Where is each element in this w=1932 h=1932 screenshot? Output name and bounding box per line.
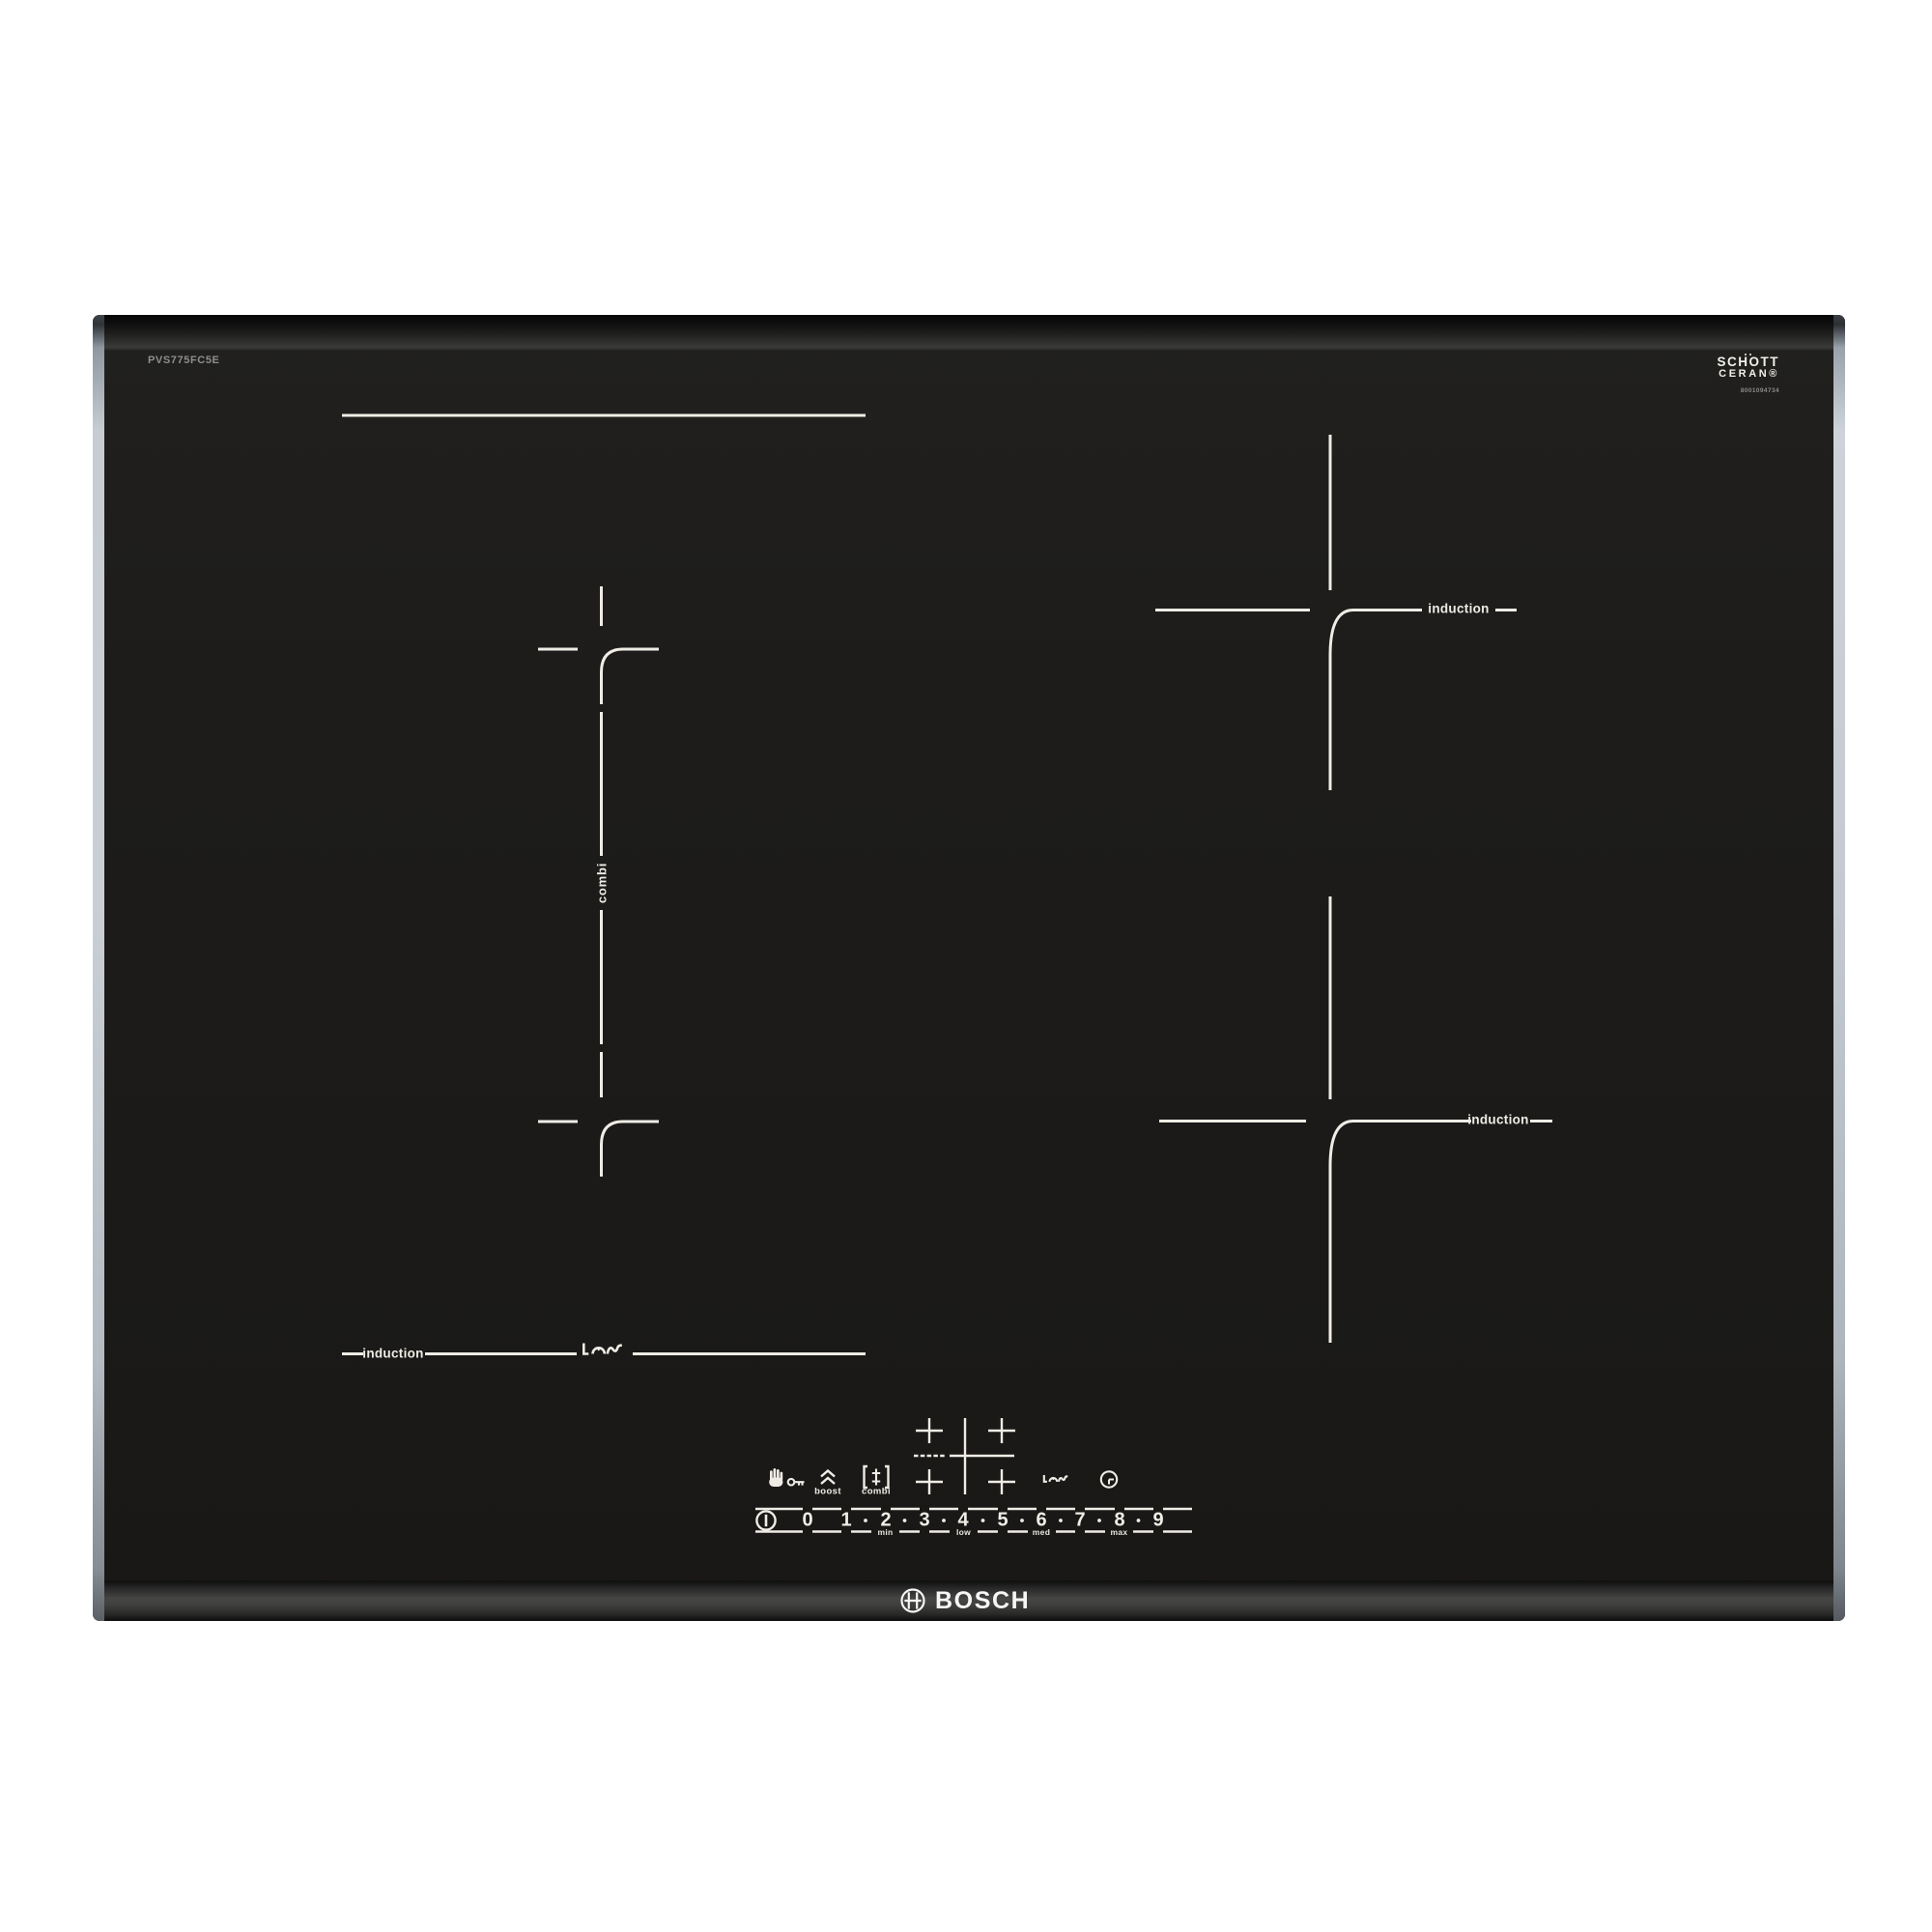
schott-wordmark: SCHOTT [1718,355,1780,369]
back-right-zone-label: induction [1428,602,1489,616]
level-9[interactable]: 9 [1152,1510,1163,1532]
boost-label[interactable]: boost [814,1487,841,1497]
induction-cooktop: PVS775FC5E SCHOTT CERAN® 8001094734 indu… [93,315,1845,1621]
glass-markings [93,315,1845,1621]
model-number: PVS775FC5E [148,355,219,366]
power-button[interactable] [756,1511,775,1529]
wipe-protection-icon[interactable] [1044,1475,1067,1482]
level-3[interactable]: 3 [919,1510,929,1532]
child-lock-icon[interactable] [769,1468,804,1487]
zone-select-cluster[interactable] [914,1418,1015,1494]
scale-min-label: min [877,1527,893,1537]
bosch-wordmark: BOSCH [935,1587,1030,1615]
bosch-emblem-icon [899,1587,926,1614]
pan-detection-icon [583,1344,622,1354]
schott-ceran-logo: SCHOTT CERAN® 8001094734 [1718,356,1780,397]
combi-icon[interactable] [865,1466,889,1488]
bosch-logo: BOSCH [899,1580,1151,1621]
front-left-zone-label: induction [362,1346,423,1360]
control-panel [755,1418,1192,1532]
boost-icon[interactable] [821,1471,835,1485]
level-0[interactable]: 0 [802,1510,812,1532]
timer-icon[interactable] [1101,1471,1117,1487]
combi-label[interactable]: combi [862,1487,891,1497]
glass-serial-number: 8001094734 [1718,385,1780,397]
scale-max-label: max [1111,1527,1128,1537]
level-7[interactable]: 7 [1074,1510,1085,1532]
front-right-zone-label: induction [1467,1113,1528,1127]
scale-low-label: low [956,1527,971,1537]
scale-med-label: med [1033,1527,1050,1537]
level-5[interactable]: 5 [997,1510,1008,1532]
ceran-wordmark: CERAN® [1718,368,1780,380]
left-combi-zone-label: combi [595,863,610,903]
schott-o-dots-icon [1745,354,1747,355]
product-photo: PVS775FC5E SCHOTT CERAN® 8001094734 indu… [0,0,1932,1932]
level-1[interactable]: 1 [840,1510,851,1532]
